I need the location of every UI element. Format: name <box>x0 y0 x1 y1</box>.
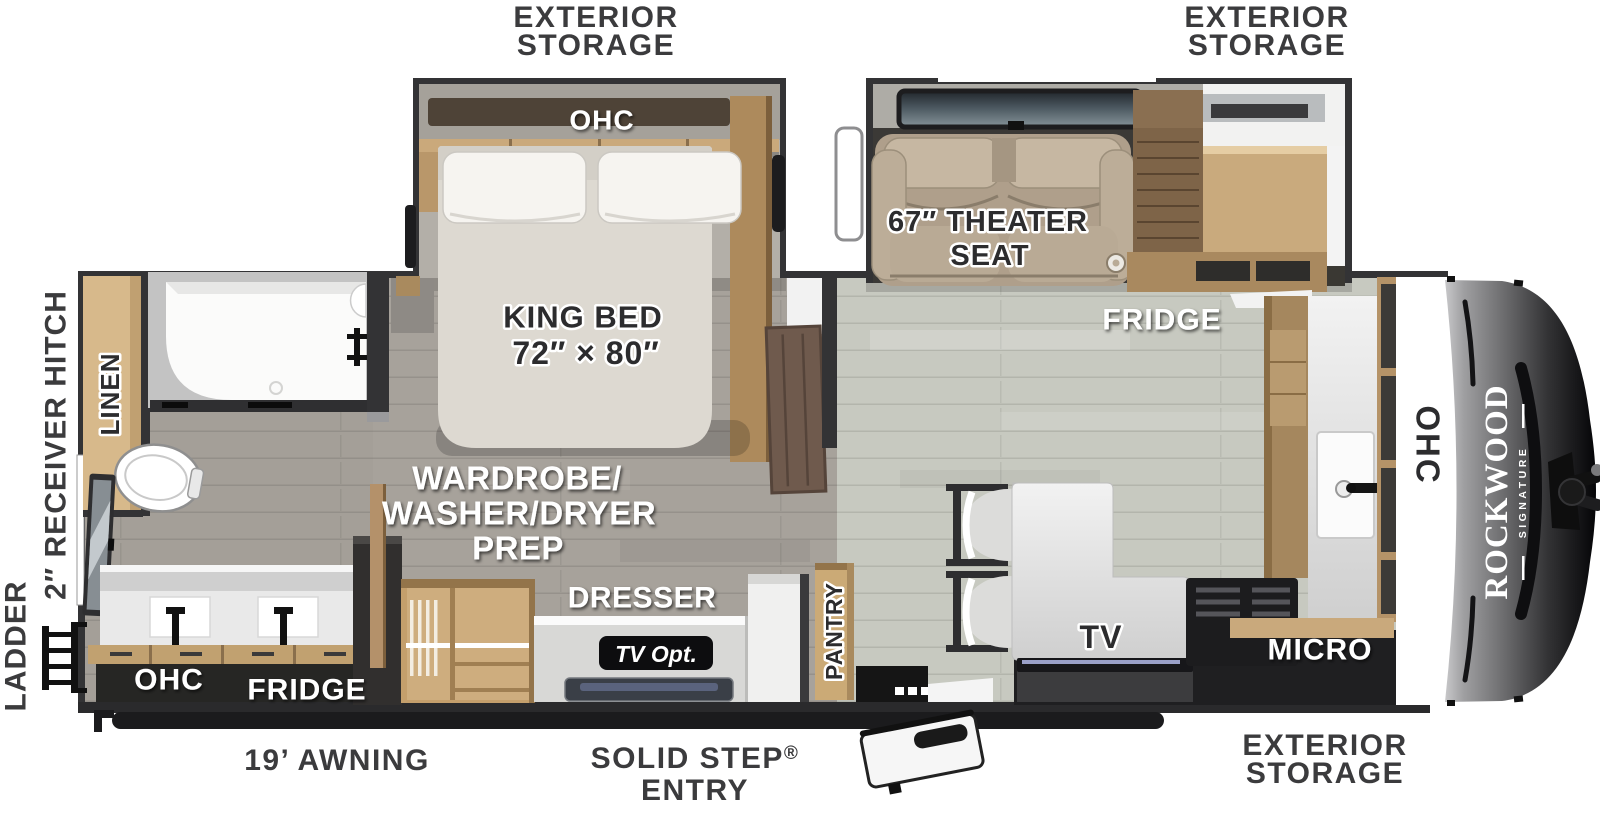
svg-text:STORAGE: STORAGE <box>1246 757 1404 790</box>
svg-text:OHC: OHC <box>134 664 204 697</box>
svg-text:72″ × 80″: 72″ × 80″ <box>512 335 659 371</box>
svg-text:KING BED: KING BED <box>503 300 663 335</box>
svg-text:2″ RECEIVER HITCH: 2″ RECEIVER HITCH <box>40 290 73 600</box>
svg-text:WASHER/DRYER: WASHER/DRYER <box>382 495 656 532</box>
svg-text:SIGNATURE: SIGNATURE <box>1517 446 1529 539</box>
svg-text:PREP: PREP <box>472 530 564 567</box>
svg-text:OHC: OHC <box>1410 405 1447 484</box>
svg-text:STORAGE: STORAGE <box>1188 29 1346 62</box>
svg-text:OHC: OHC <box>569 105 634 136</box>
svg-text:FRIDGE: FRIDGE <box>247 674 366 707</box>
svg-text:WARDROBE/: WARDROBE/ <box>412 460 622 497</box>
svg-text:ENTRY: ENTRY <box>641 774 749 807</box>
svg-text:67″ THEATER: 67″ THEATER <box>888 206 1088 238</box>
svg-text:SEAT: SEAT <box>950 240 1029 272</box>
svg-text:STORAGE: STORAGE <box>517 29 675 62</box>
svg-text:PANTRY: PANTRY <box>821 582 847 680</box>
svg-text:ROCKWOOD: ROCKWOOD <box>1479 384 1515 599</box>
svg-text:LINEN: LINEN <box>95 353 125 436</box>
svg-text:TV Opt.: TV Opt. <box>615 641 697 667</box>
svg-text:SOLID STEP®: SOLID STEP® <box>591 742 800 775</box>
svg-text:DRESSER: DRESSER <box>568 582 717 615</box>
svg-text:LADDER: LADDER <box>0 581 33 712</box>
svg-text:TV: TV <box>1080 619 1123 655</box>
svg-text:FRIDGE: FRIDGE <box>1102 304 1221 337</box>
svg-text:19’ AWNING: 19’ AWNING <box>244 744 430 777</box>
svg-text:MICRO: MICRO <box>1268 634 1373 667</box>
